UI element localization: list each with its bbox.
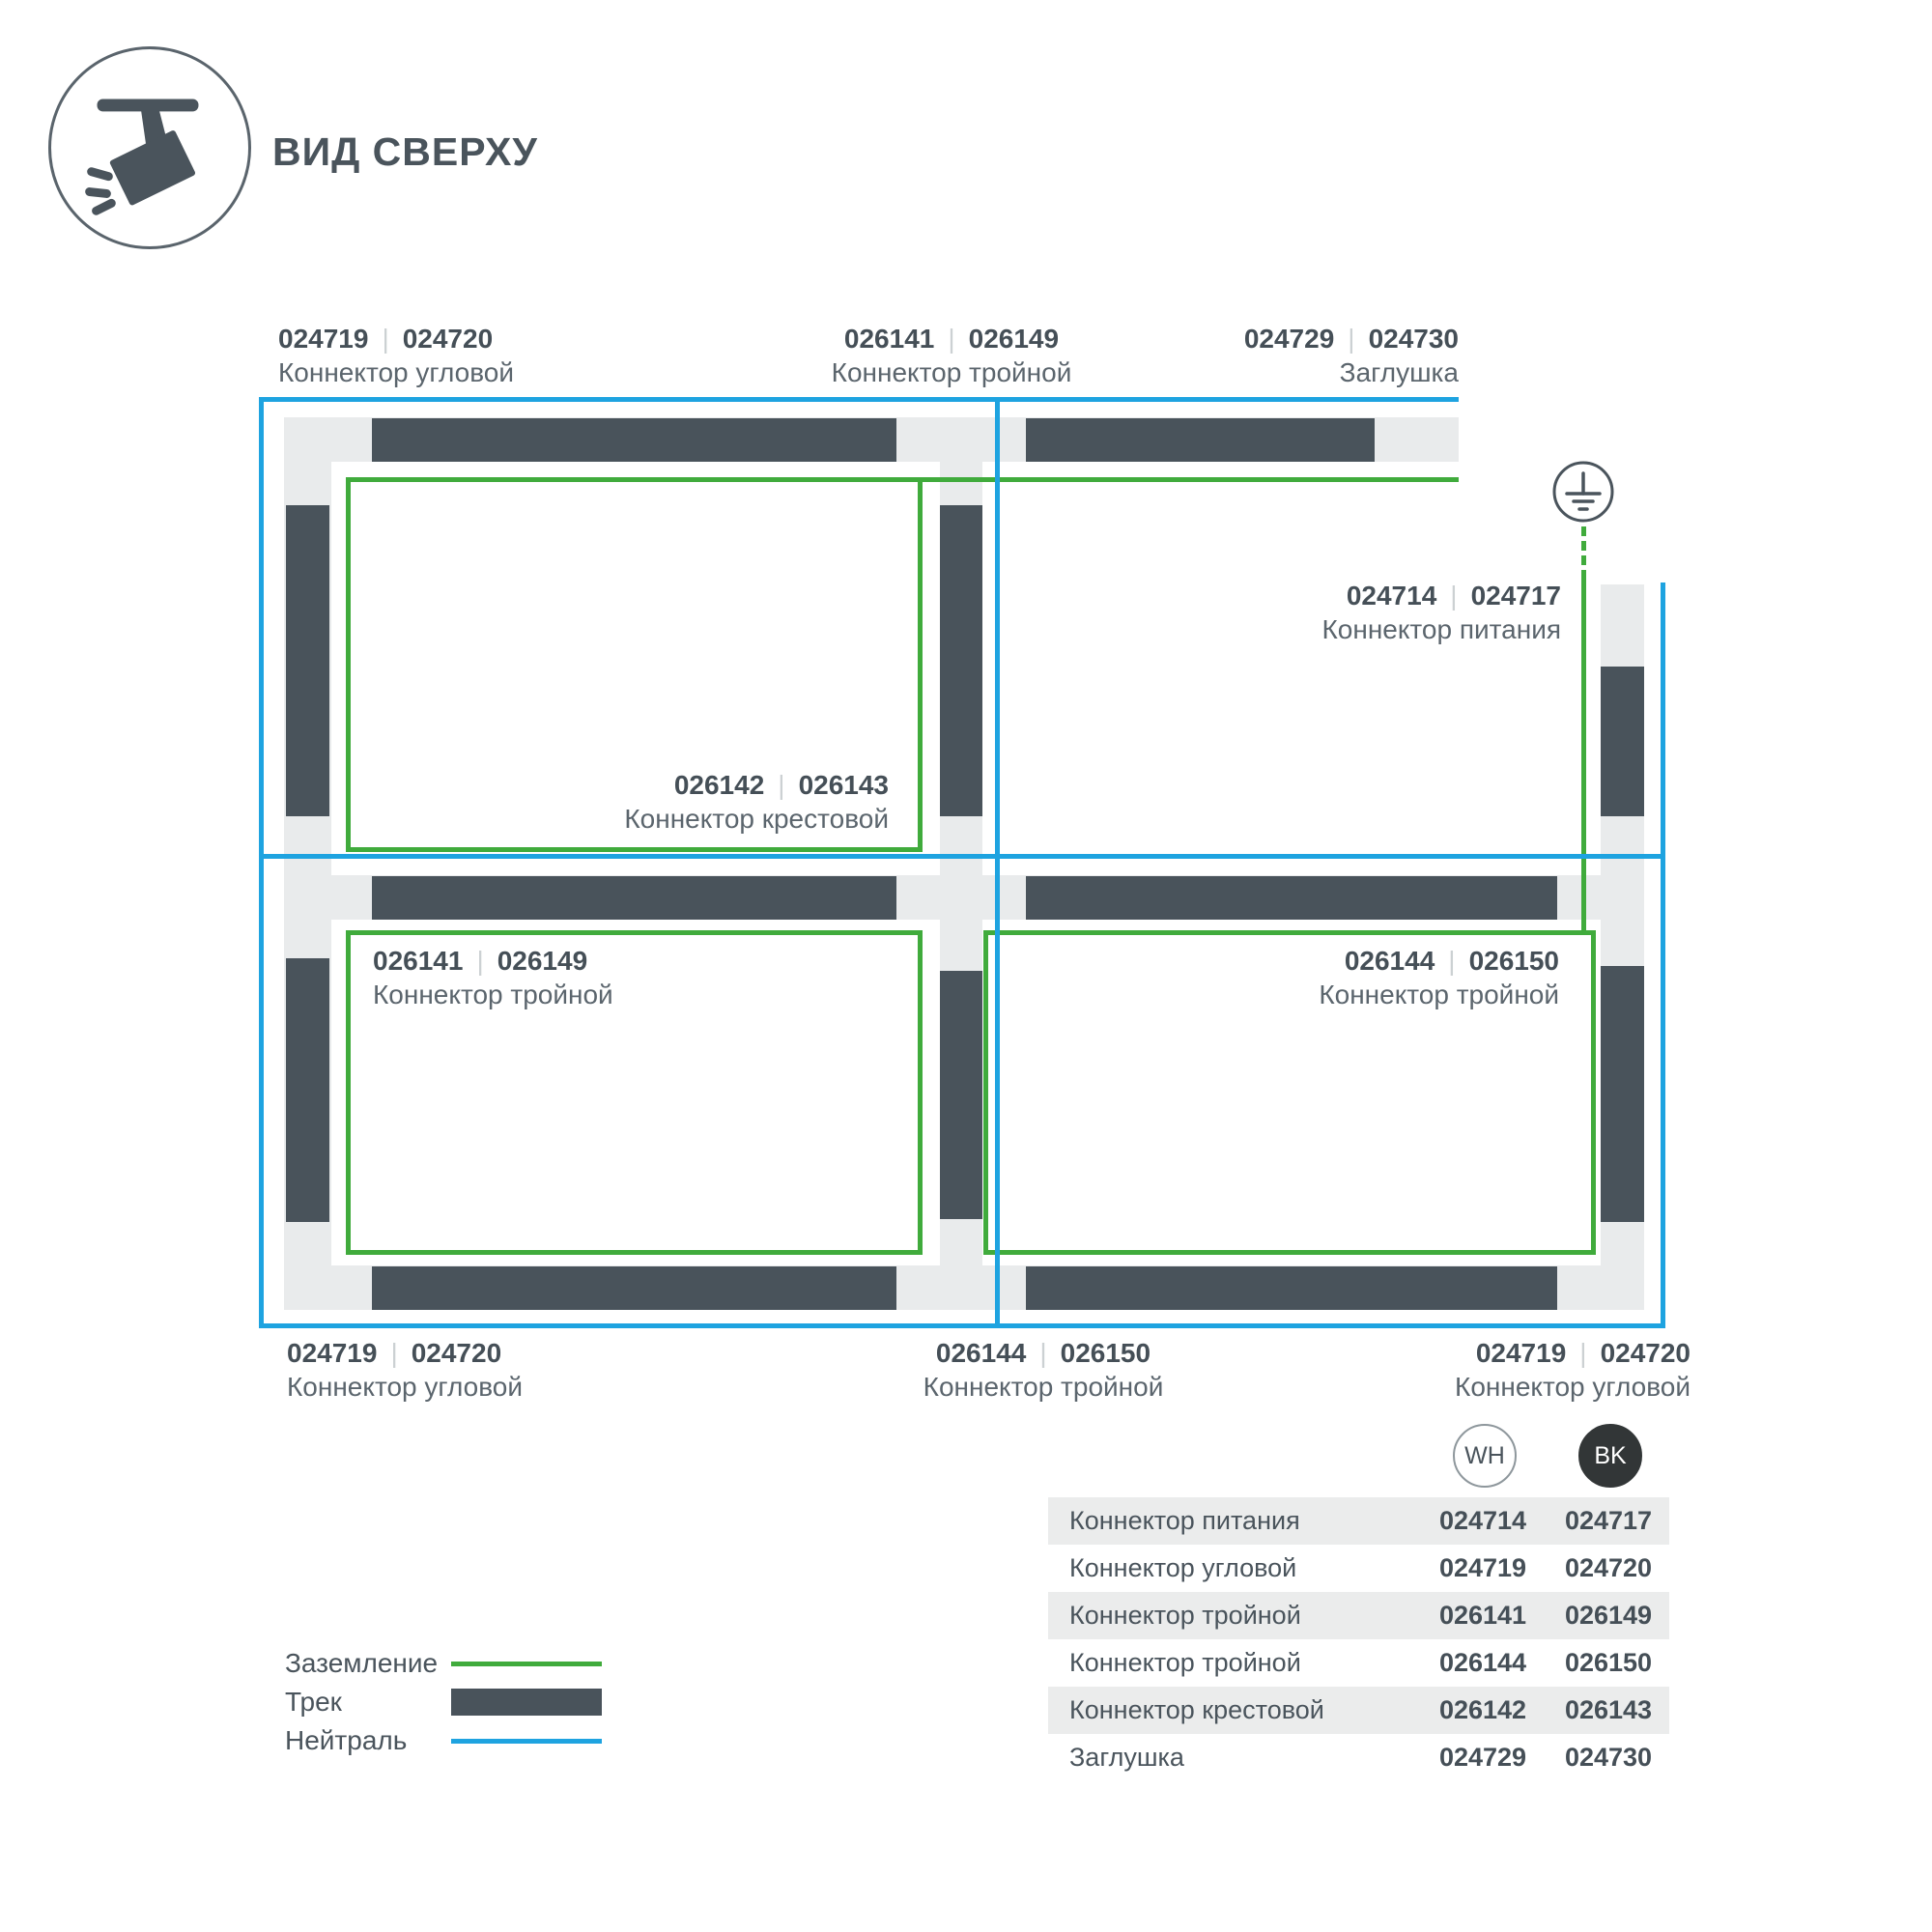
legend-ground-line-swatch <box>451 1662 602 1666</box>
legend-label-track: Трек <box>285 1687 342 1718</box>
color-badge-white: WH <box>1453 1424 1517 1488</box>
separator: | <box>1436 581 1470 611</box>
track-bar <box>286 958 329 1222</box>
track-bar <box>372 418 896 462</box>
separator: | <box>934 324 968 354</box>
neutral-line-bottom <box>259 1323 1665 1328</box>
legend-neutral-line-swatch <box>451 1739 602 1744</box>
track-bar <box>1601 966 1644 1222</box>
color-badge-black: BK <box>1578 1424 1642 1488</box>
table-row: Коннектор питания 024714024717 <box>1048 1497 1669 1545</box>
ground-feed-dashed-line <box>1581 526 1586 580</box>
label-tee-connector-top: 026141|026149 Коннектор тройной <box>832 325 1072 387</box>
page-title: ВИД СВЕРХУ <box>272 129 538 175</box>
separator: | <box>1435 946 1468 976</box>
separator: | <box>463 946 497 976</box>
neutral-line-middle <box>259 854 1665 859</box>
separator: | <box>377 1338 411 1368</box>
track-bar <box>940 505 982 816</box>
separator: | <box>1566 1338 1600 1368</box>
table-row: Коннектор тройной 026144026150 <box>1048 1639 1669 1687</box>
label-corner-connector-top-left: 024719|024720 Коннектор угловой <box>278 325 514 387</box>
page: ВИД СВЕРХУ <box>0 0 1932 1932</box>
spotlight-glyph <box>51 49 242 241</box>
neutral-line-right <box>1661 582 1665 1328</box>
label-corner-connector-bottom-left: 024719|024720 Коннектор угловой <box>287 1339 523 1402</box>
track-bar <box>1026 1266 1557 1310</box>
neutral-line-center <box>995 397 1000 1328</box>
label-tee-connector-middle-right: 026144|026150 Коннектор тройной <box>1319 947 1559 1009</box>
ground-feed-line <box>1581 580 1586 932</box>
legend-label-neutral: Нейтраль <box>285 1725 407 1756</box>
track-bar <box>1026 418 1375 462</box>
parts-table: WH BK Коннектор питания 024714024717 Кон… <box>1048 1422 1669 1781</box>
label-corner-connector-bottom-right: 024719|024720 Коннектор угловой <box>1455 1339 1690 1402</box>
table-row: Заглушка 024729024730 <box>1048 1734 1669 1781</box>
table-row: Коннектор крестовой 026142026143 <box>1048 1687 1669 1734</box>
separator: | <box>1334 324 1368 354</box>
separator: | <box>1026 1338 1060 1368</box>
legend-track-bar-swatch <box>451 1689 602 1716</box>
track-spotlight-icon <box>48 46 251 249</box>
separator: | <box>764 770 798 800</box>
track-bar <box>940 971 982 1219</box>
track-bar <box>286 505 329 816</box>
neutral-line-left <box>259 397 264 1328</box>
table-row: Коннектор тройной 026141026149 <box>1048 1592 1669 1639</box>
earth-ground-icon <box>1551 460 1615 524</box>
table-row: Коннектор угловой 024719024720 <box>1048 1545 1669 1592</box>
track-bar <box>1601 667 1644 816</box>
label-cross-connector: 026142|026143 Коннектор крестовой <box>624 771 889 834</box>
label-tee-connector-bottom: 026144|026150 Коннектор тройной <box>923 1339 1164 1402</box>
track-bar <box>1026 876 1557 920</box>
legend-label-ground: Заземление <box>285 1648 438 1679</box>
label-tee-connector-middle-left: 026141|026149 Коннектор тройной <box>373 947 613 1009</box>
neutral-line-top <box>259 397 1459 402</box>
track-bar <box>372 1266 896 1310</box>
label-power-connector: 024714|024717 Коннектор питания <box>1321 582 1561 644</box>
label-end-cap: 024729|024730 Заглушка <box>1244 325 1459 387</box>
track-bar <box>372 876 896 920</box>
separator: | <box>368 324 402 354</box>
